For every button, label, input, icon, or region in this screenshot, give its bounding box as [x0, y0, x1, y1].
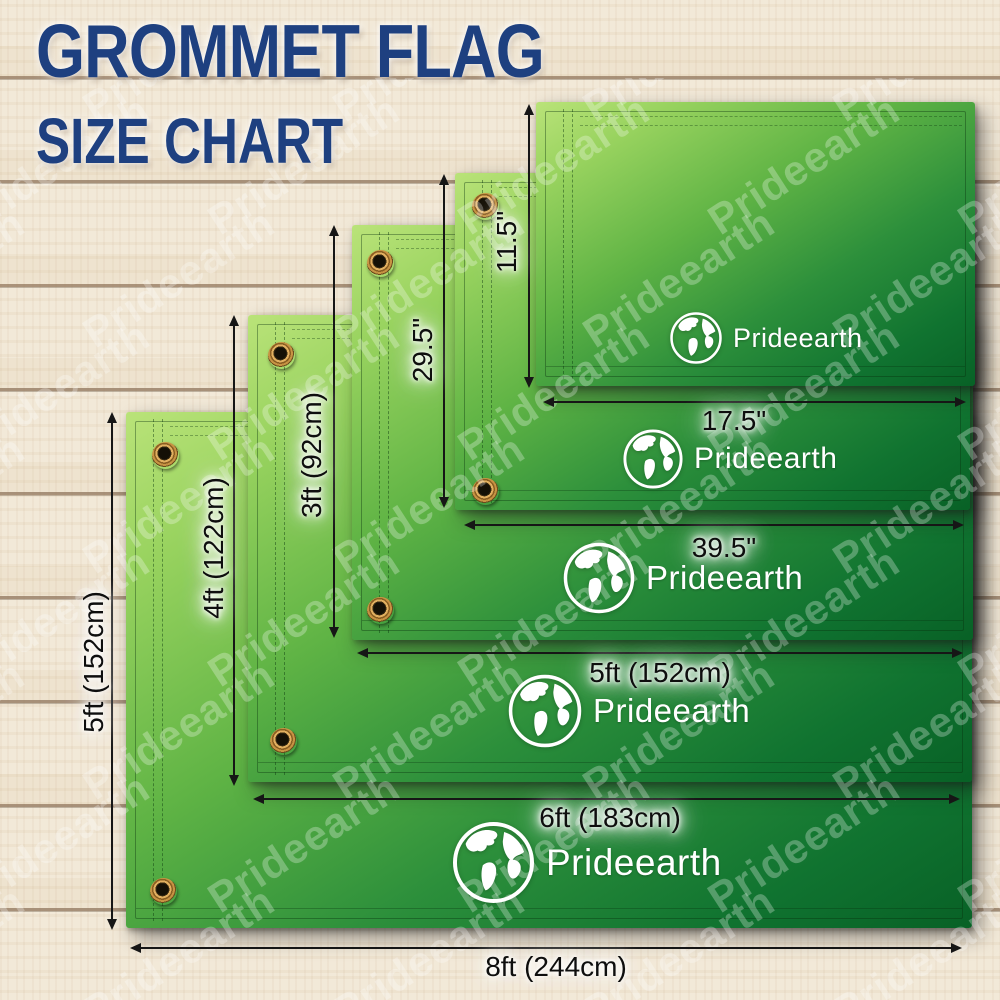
grommet-bottom-left	[270, 728, 297, 755]
globe-icon	[562, 541, 636, 615]
width-arrow-11.5in	[554, 401, 955, 403]
height-arrow-3x5ft	[333, 236, 335, 627]
width-arrow-29.5in	[475, 524, 953, 526]
left-sleeve-stitch	[379, 232, 389, 633]
height-arrow-5x8ft	[111, 423, 113, 919]
brand-logo: Prideearth	[622, 428, 837, 490]
width-label-29.5in: 39.5"	[692, 532, 756, 564]
globe-icon	[451, 820, 536, 905]
globe-icon	[622, 428, 684, 490]
width-arrow-3x5ft	[368, 652, 952, 654]
width-label-4x6ft: 6ft (183cm)	[539, 802, 681, 834]
left-sleeve-stitch	[275, 322, 285, 775]
width-label-5x8ft: 8ft (244cm)	[485, 951, 627, 983]
grommet-top-left	[367, 250, 394, 277]
height-label-5x8ft: 5ft (152cm)	[78, 591, 110, 733]
page-title: GROMMET FLAG SIZE CHART	[36, 14, 641, 173]
brand-logo-text: Prideearth	[546, 842, 722, 884]
brand-logo-text: Prideearth	[593, 692, 750, 730]
brand-logo-text: Prideearth	[733, 323, 863, 354]
height-arrow-4x6ft	[233, 326, 235, 775]
height-label-3x5ft: 3ft (92cm)	[296, 392, 328, 518]
grommet-bottom-left	[367, 597, 394, 624]
height-label-11.5in: 11.5"	[491, 211, 523, 273]
title-line-2: SIZE CHART	[36, 109, 520, 173]
bottom-hem-stitch	[362, 620, 963, 621]
width-arrow-5x8ft	[141, 947, 951, 949]
bottom-hem-stitch	[136, 908, 962, 909]
width-label-3x5ft: 5ft (152cm)	[589, 657, 731, 689]
height-label-4x6ft: 4ft (122cm)	[198, 477, 230, 619]
size-chart-infographic: Prideearth Prideearth	[0, 0, 1000, 1000]
brand-logo: Prideearth	[669, 311, 863, 365]
globe-icon	[669, 311, 723, 365]
height-label-29.5in: 29.5"	[407, 318, 439, 382]
brand-logo: Prideearth	[562, 541, 803, 615]
bottom-hem-stitch	[546, 366, 965, 367]
title-line-1: GROMMET FLAG	[36, 14, 544, 89]
brand-logo-text: Prideearth	[646, 559, 803, 597]
width-label-11.5in: 17.5"	[702, 405, 766, 437]
width-arrow-4x6ft	[264, 798, 949, 800]
bottom-hem-stitch	[258, 762, 962, 763]
height-arrow-29.5in	[443, 185, 445, 497]
grommet-top-left	[152, 442, 179, 469]
grommet-bottom-left	[150, 878, 177, 905]
grommet-top-left	[268, 342, 295, 369]
brand-logo-text: Prideearth	[694, 442, 837, 476]
grommet-bottom-left	[472, 478, 499, 505]
bottom-hem-stitch	[465, 490, 960, 491]
globe-icon	[507, 673, 583, 749]
left-sleeve-stitch	[153, 419, 163, 921]
